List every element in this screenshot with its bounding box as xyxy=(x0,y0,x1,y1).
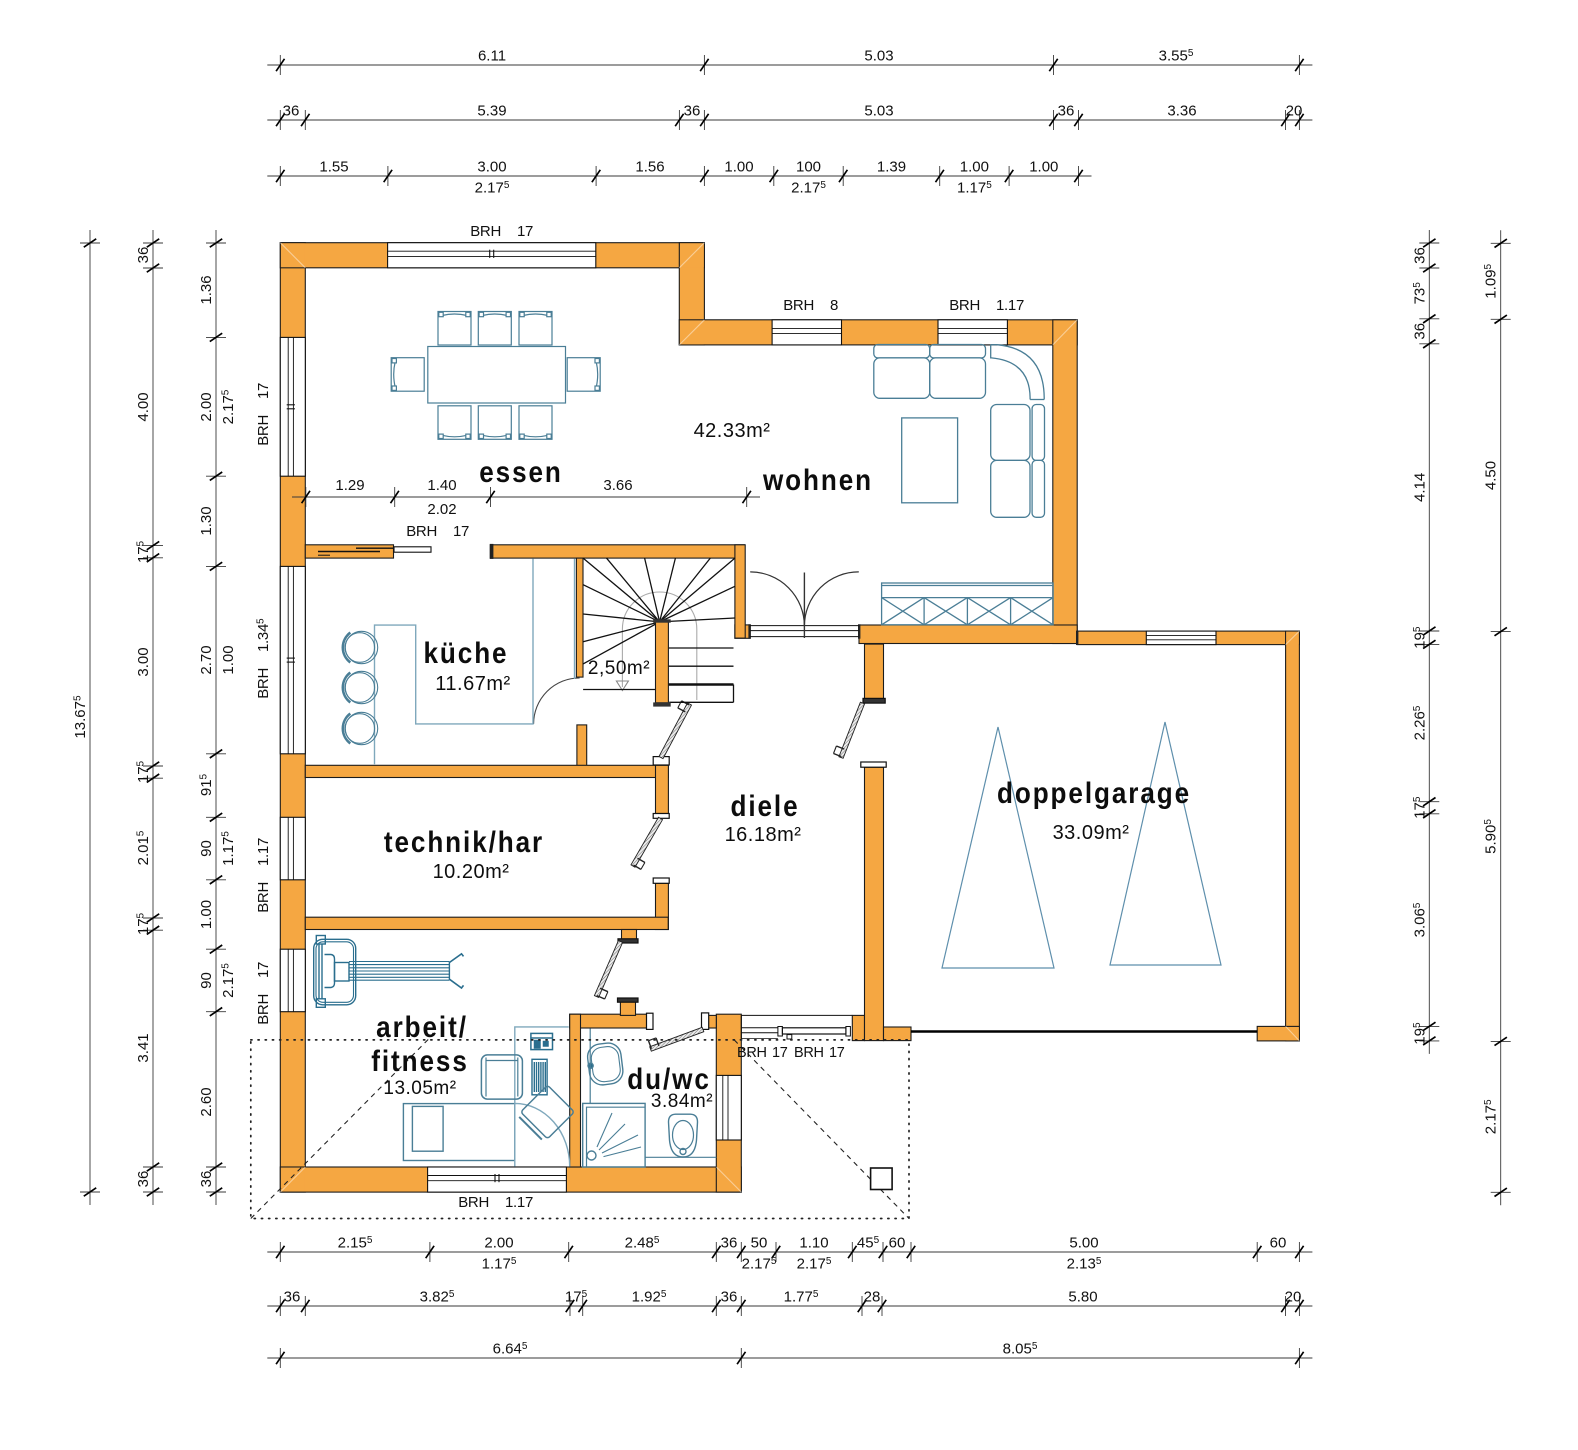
svg-text:17: 17 xyxy=(255,383,272,399)
svg-text:2.00: 2.00 xyxy=(484,1235,513,1252)
svg-text:36: 36 xyxy=(135,1171,152,1188)
svg-text:90: 90 xyxy=(198,840,215,857)
svg-text:17: 17 xyxy=(772,1045,788,1061)
svg-text:1.30: 1.30 xyxy=(198,506,215,535)
svg-text:1.55: 1.55 xyxy=(319,159,348,176)
svg-text:1.56: 1.56 xyxy=(635,159,664,176)
svg-text:2.00: 2.00 xyxy=(198,392,215,421)
svg-text:36: 36 xyxy=(684,103,701,120)
svg-text:BRH: BRH xyxy=(406,523,437,540)
svg-text:2.02: 2.02 xyxy=(427,501,456,518)
svg-text:1.00: 1.00 xyxy=(960,159,989,176)
svg-text:5.80: 5.80 xyxy=(1068,1289,1097,1306)
svg-text:BRH: BRH xyxy=(255,415,272,446)
svg-text:1.10: 1.10 xyxy=(799,1235,828,1252)
svg-text:4.00: 4.00 xyxy=(135,392,152,421)
svg-text:13.675: 13.675 xyxy=(72,695,89,739)
svg-text:36: 36 xyxy=(1058,103,1075,120)
svg-text:90: 90 xyxy=(198,972,215,989)
svg-text:4.14: 4.14 xyxy=(1411,473,1428,502)
svg-text:BRH: BRH xyxy=(255,994,272,1025)
svg-text:11.67m²: 11.67m² xyxy=(435,673,510,695)
svg-text:technik/har: technik/har xyxy=(384,825,544,858)
svg-text:20: 20 xyxy=(1285,1289,1302,1306)
svg-text:36: 36 xyxy=(721,1235,738,1252)
svg-text:1.00: 1.00 xyxy=(1029,159,1058,176)
svg-text:1.39: 1.39 xyxy=(877,159,906,176)
svg-text:100: 100 xyxy=(796,159,821,176)
svg-text:fitness: fitness xyxy=(371,1044,469,1077)
svg-text:BRH: BRH xyxy=(783,297,814,314)
svg-text:BRH: BRH xyxy=(737,1045,767,1061)
svg-text:arbeit/: arbeit/ xyxy=(376,1010,468,1043)
svg-text:2.60: 2.60 xyxy=(198,1087,215,1116)
svg-text:8: 8 xyxy=(830,297,838,314)
svg-text:36: 36 xyxy=(721,1289,738,1306)
svg-text:1.00: 1.00 xyxy=(220,645,237,674)
svg-text:17: 17 xyxy=(517,223,533,240)
svg-text:1.17: 1.17 xyxy=(996,297,1024,314)
svg-text:4.50: 4.50 xyxy=(1483,461,1500,490)
svg-text:1.36: 1.36 xyxy=(198,275,215,304)
svg-text:36: 36 xyxy=(198,1171,215,1188)
svg-text:diele: diele xyxy=(730,789,799,822)
svg-text:5.00: 5.00 xyxy=(1069,1235,1098,1252)
svg-text:36: 36 xyxy=(135,247,152,264)
svg-text:1.00: 1.00 xyxy=(724,159,753,176)
svg-text:36: 36 xyxy=(283,103,300,120)
svg-text:3.66: 3.66 xyxy=(603,477,632,494)
svg-text:6.11: 6.11 xyxy=(478,48,506,65)
svg-text:5.03: 5.03 xyxy=(864,48,893,65)
svg-text:BRH: BRH xyxy=(470,223,501,240)
svg-text:doppelgarage: doppelgarage xyxy=(997,776,1191,809)
svg-text:1.17: 1.17 xyxy=(505,1194,533,1211)
svg-text:2,50m²: 2,50m² xyxy=(588,658,650,679)
svg-text:BRH: BRH xyxy=(255,668,272,699)
svg-text:BRH: BRH xyxy=(794,1045,824,1061)
svg-text:60: 60 xyxy=(1270,1235,1287,1252)
svg-text:60: 60 xyxy=(889,1235,906,1252)
svg-text:36: 36 xyxy=(1411,323,1428,340)
svg-text:küche: küche xyxy=(424,636,509,669)
svg-text:20: 20 xyxy=(1286,103,1303,120)
svg-text:33.09m²: 33.09m² xyxy=(1053,822,1130,844)
svg-text:36: 36 xyxy=(1411,247,1428,264)
svg-text:17: 17 xyxy=(255,962,272,978)
svg-text:3.36: 3.36 xyxy=(1167,103,1196,120)
svg-text:1.40: 1.40 xyxy=(427,477,456,494)
svg-text:1.00: 1.00 xyxy=(198,900,215,929)
svg-text:essen: essen xyxy=(479,455,563,488)
svg-text:BRH: BRH xyxy=(458,1194,489,1211)
svg-text:1.17: 1.17 xyxy=(255,838,272,866)
svg-text:3.41: 3.41 xyxy=(135,1033,152,1062)
svg-text:wohnen: wohnen xyxy=(762,463,873,496)
svg-text:3.00: 3.00 xyxy=(477,159,506,176)
svg-text:36: 36 xyxy=(284,1289,301,1306)
svg-text:17: 17 xyxy=(829,1045,845,1061)
svg-text:3.84m²: 3.84m² xyxy=(651,1091,713,1112)
svg-text:BRH: BRH xyxy=(255,882,272,913)
svg-text:42.33m²: 42.33m² xyxy=(694,420,771,442)
svg-text:5.39: 5.39 xyxy=(477,103,506,120)
svg-text:BRH: BRH xyxy=(949,297,980,314)
svg-text:2.70: 2.70 xyxy=(198,645,215,674)
svg-text:28: 28 xyxy=(864,1289,881,1306)
svg-text:3.00: 3.00 xyxy=(135,647,152,676)
svg-text:5.03: 5.03 xyxy=(864,103,893,120)
svg-text:10.20m²: 10.20m² xyxy=(433,861,510,883)
svg-text:13.05m²: 13.05m² xyxy=(383,1078,456,1099)
svg-text:50: 50 xyxy=(751,1235,768,1252)
svg-text:1.29: 1.29 xyxy=(335,477,364,494)
svg-text:17: 17 xyxy=(453,523,469,540)
svg-text:16.18m²: 16.18m² xyxy=(725,824,802,846)
